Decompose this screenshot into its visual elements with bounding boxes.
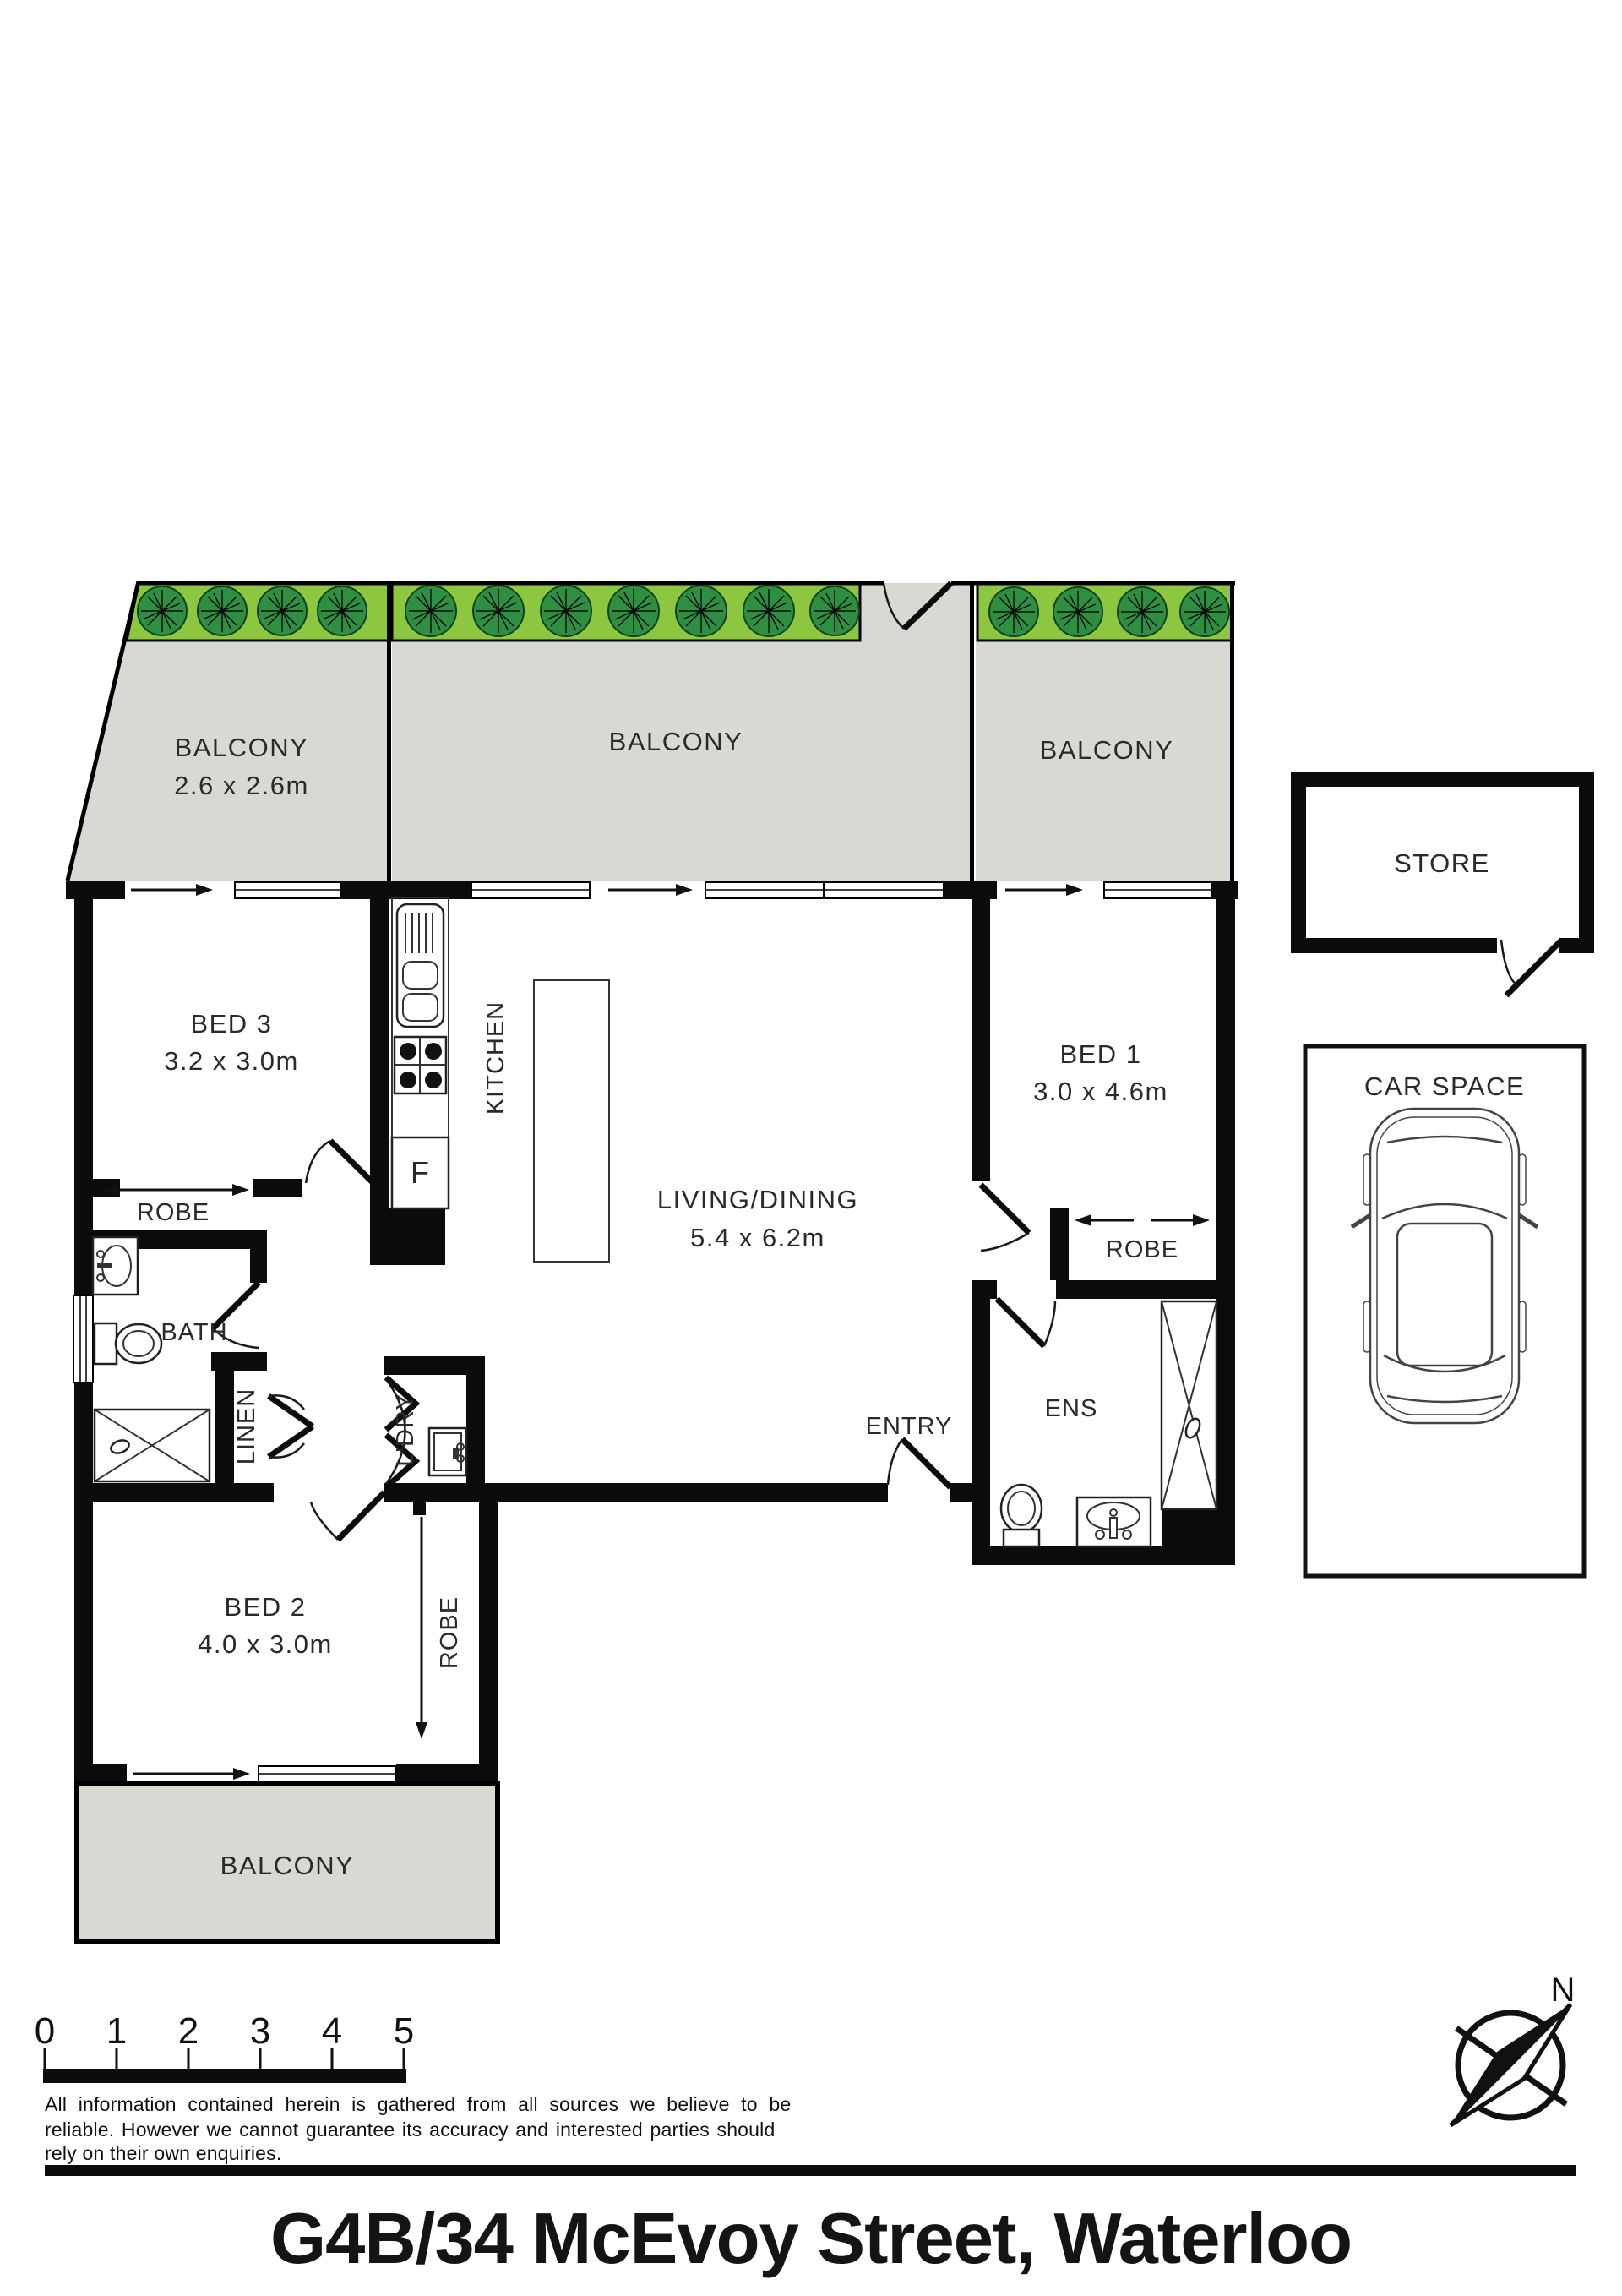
arrow-icon-robe-bed3 [101,1184,249,1196]
label-ens: ENS [1045,1395,1098,1422]
laundry-sink-icon [429,1428,466,1475]
floorplan-svg: F [0,0,1622,2296]
label-robe-bed1: ROBE [1106,1236,1178,1263]
toilet-icon [1001,1485,1042,1546]
door-bed3 [306,1141,378,1188]
scale-4: 4 [322,2010,342,2052]
car-space: CAR SPACE [1305,1046,1584,1576]
label-linen: LINEN [233,1388,260,1464]
basin-icon [1077,1497,1151,1546]
fridge-icon: F [392,1137,449,1208]
title-divider [45,2165,1576,2176]
basin-icon [93,1237,138,1295]
scale-3: 3 [250,2010,270,2052]
door-linen [269,1395,313,1457]
scale-0: 0 [35,2010,55,2052]
fridge-label: F [411,1155,429,1190]
label-bath: BATH [161,1319,227,1346]
sink-icon [397,904,444,1027]
label-bed1-dims: 3.0 x 4.6m [1033,1077,1168,1106]
label-living: LIVING/DINING [657,1185,858,1214]
label-balcony-left: BALCONY [175,733,309,762]
label-bed3-dims: 3.2 x 3.0m [164,1046,299,1076]
window-bed2 [259,1766,396,1782]
room-labels: BALCONY 2.6 x 2.6m BALCONY BALCONY BED 3… [137,727,1178,1880]
doors [213,1141,1055,1540]
disclaimer: All information contained herein is gath… [45,2093,791,2164]
label-balcony-right: BALCONY [1040,735,1174,765]
arrow-icon [608,884,693,896]
window-bath [73,1295,93,1383]
disclaimer-line2: reliable. However we cannot guarantee it… [45,2119,775,2141]
door-ens [997,1299,1055,1346]
label-bed2: BED 2 [224,1592,306,1622]
label-kitchen: KITCHEN [482,1001,509,1115]
label-balcony-bottom: BALCONY [220,1851,355,1880]
floorplan-page: F [0,0,1622,2296]
label-balcony-left-dims: 2.6 x 2.6m [174,771,309,800]
arrow-icon [1005,884,1083,896]
label-entry: ENTRY [866,1413,953,1440]
store: STORE [1291,772,1594,995]
label-living-dims: 5.4 x 6.2m [690,1223,825,1252]
arrow-icon [133,1768,250,1780]
car-icon [1352,1109,1538,1423]
compass-icon: N [1451,1972,1575,2125]
scale-1: 1 [106,2010,127,2052]
door-entry [888,1439,950,1487]
bath-fixtures [93,1237,210,1481]
page-title: G4B/34 McEvoy Street, Waterloo [270,2199,1352,2279]
label-balcony-middle: BALCONY [609,727,743,756]
disclaimer-line1: All information contained herein is gath… [45,2093,791,2115]
window-living-1 [471,882,590,898]
shower-icon [95,1410,210,1481]
stove-icon [395,1037,446,1093]
scale-5: 5 [394,2010,414,2052]
window-living-2 [705,882,944,898]
island-bench [534,980,609,1262]
toilet-icon [95,1323,161,1364]
label-bed2-dims: 4.0 x 3.0m [198,1629,333,1659]
shower-icon [1162,1301,1216,1509]
label-robe-bed2: ROBE [436,1596,463,1669]
arrow-icon-robe-bed2 [416,1517,427,1739]
door-bed2 [311,1492,384,1540]
arrow-icon [131,884,213,896]
label-bed3: BED 3 [190,1009,272,1039]
scale-bar: 0 1 2 3 4 5 [35,2010,414,2083]
window-bed1 [1104,882,1211,898]
scale-bar-rule [43,2069,406,2083]
car-space-label: CAR SPACE [1364,1072,1525,1101]
door-bed1 [981,1185,1029,1251]
store-label: STORE [1394,848,1490,878]
scale-2: 2 [178,2010,199,2052]
label-laundry: L'DRY [392,1393,419,1466]
label-robe-bed3: ROBE [137,1199,210,1226]
north-label: N [1551,1972,1576,2009]
arrow-icon-robe-bed1 [1075,1214,1210,1226]
disclaimer-line3: rely on their own enquiries. [45,2142,281,2164]
window-bed3 [235,882,340,898]
label-bed1: BED 1 [1059,1039,1141,1069]
